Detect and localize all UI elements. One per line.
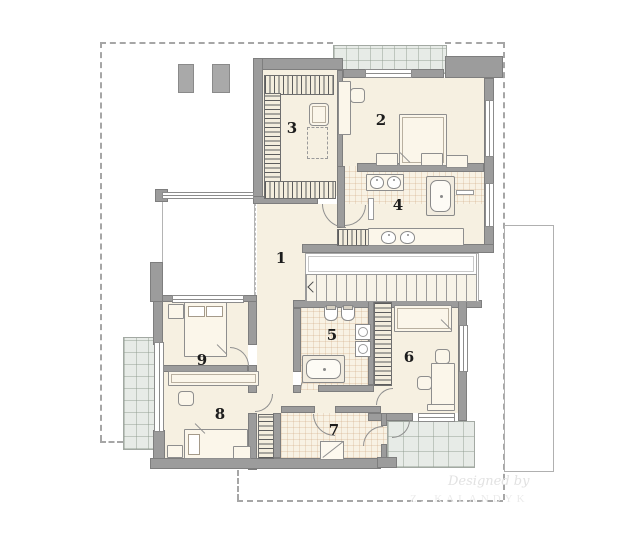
dryer-drum [358,344,368,354]
roof-outline-dashed-top-right [445,42,503,44]
wall [248,300,257,345]
washer-drum [358,327,368,337]
towel-rail [456,190,474,195]
attic-hatch-diagonal [322,441,343,458]
room-7-number: 7 [325,422,343,438]
balcony-door-window [154,342,164,432]
wall [150,262,163,302]
roof-outline-dashed-bottom-left [100,441,123,443]
stair-void [305,253,477,275]
wall [445,56,503,78]
faucet-dot [393,179,395,181]
blanket-fold [217,344,228,355]
wall [253,58,263,204]
roof-outline-dashed-top-left [100,42,333,44]
room-1-number: 1 [272,250,290,266]
window [365,69,412,78]
room-9-number: 9 [193,352,211,368]
chimney [178,64,194,93]
wall [335,406,381,413]
pillow [188,434,200,455]
pillow [188,306,205,317]
washbasin [387,176,401,189]
void-edge-window [162,192,254,199]
room-3-number: 3 [283,120,301,136]
window [459,325,468,372]
wardrobe-shelving [337,229,369,246]
toilet-tank [326,305,336,310]
toilet [324,305,338,321]
void-dashed-edge [255,198,256,300]
washbasin [400,231,415,244]
nightstand [168,304,184,319]
floor-plan: 1 2 3 4 5 6 7 8 9 Designed by Z. KALANDY… [0,0,638,556]
wall [150,458,381,469]
shelf [427,404,455,411]
chair [417,376,432,390]
faucet-dot [376,179,378,181]
watermark-designed-by: Designed by [448,474,529,489]
single-bed [394,305,452,332]
washbasin [370,176,384,189]
roof-outline-dashed-bottom-stub [237,470,239,500]
wall [273,413,281,458]
roof-outline-dashed-left [100,42,102,441]
staircase [305,274,477,302]
wall [381,444,387,458]
wardrobe-shelving [264,75,334,95]
window [485,100,494,157]
wall [293,308,301,372]
wardrobe-shelving [374,302,392,386]
stair-void-inner-line [308,256,474,272]
side-table [350,88,365,103]
faucet-dot [388,234,390,236]
bidet-base [343,305,353,310]
nightstand [421,153,443,166]
armchair [309,103,329,126]
armchair-seat [312,106,326,123]
desk-long [168,371,259,386]
window [485,183,494,227]
wall [153,295,163,345]
dryer [355,341,371,357]
bathtub [426,176,455,216]
bathtub-drain [440,195,443,198]
bathtub [302,355,345,383]
side-table [167,445,183,458]
radiator [368,198,374,220]
stool [435,349,450,364]
open-void-floor [162,196,255,302]
cabinet [446,155,468,168]
chimney [212,64,230,93]
washbasin [381,231,396,244]
wall [377,457,397,468]
room-2-number: 2 [372,112,390,128]
washing-machine [355,324,371,340]
nightstand [376,153,398,166]
room-8-number: 8 [211,406,229,422]
bathtub-drain [323,368,326,371]
bidet [341,305,355,321]
wardrobe-shelving [264,93,281,183]
room-5-number: 5 [323,327,341,343]
planned-desk-outline [307,127,328,159]
wardrobe-shelving [258,414,274,459]
wall [381,413,387,426]
pillow [206,306,223,317]
wardrobe-shelving [264,181,336,199]
desk-top [171,374,256,383]
wall [281,406,315,413]
attic-hatch [320,441,344,460]
lower-roof-outline [504,225,554,472]
wall [318,385,374,392]
wardrobe-cabinet [338,81,351,135]
desk [431,363,455,405]
side-table [233,446,251,459]
room-6-number: 6 [400,349,418,365]
chair [178,391,194,406]
window [418,413,455,422]
room-4-number: 4 [389,197,407,213]
watermark-author: Z. KALANDYK [410,493,529,505]
double-bed [184,302,227,357]
wall [253,58,343,70]
faucet-dot [407,234,409,236]
